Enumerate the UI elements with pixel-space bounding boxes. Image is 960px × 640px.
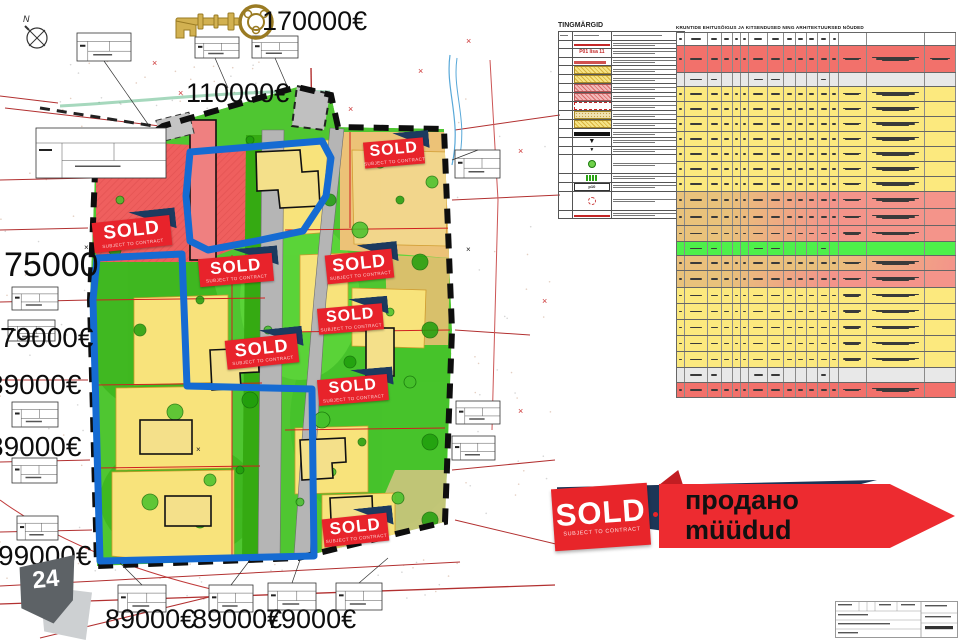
- table-cell: [784, 226, 795, 241]
- table-cell: [818, 368, 831, 382]
- banner-dot: [653, 512, 658, 517]
- table-cell: [784, 383, 795, 397]
- legend-cell: [572, 155, 611, 174]
- table-cell: [685, 33, 707, 45]
- table-cell: [818, 209, 831, 225]
- table-cell: [925, 320, 956, 335]
- legend-cell: [559, 40, 573, 49]
- building-rights-table: KRUNTIDE EHITUSÕIGUS JA KITSENDUSED NING…: [676, 25, 956, 398]
- table-cell: [818, 102, 831, 116]
- table-cell: [768, 242, 785, 255]
- table-cell: [708, 288, 722, 303]
- table-cell: [925, 352, 956, 367]
- table-cell: [807, 368, 818, 382]
- table-cell: [867, 147, 926, 161]
- legend-cell: [572, 102, 611, 111]
- table-cell: [867, 33, 926, 45]
- table-cell: [839, 352, 867, 367]
- table-cell: [685, 352, 707, 367]
- table-cell: [818, 256, 831, 270]
- table-cell: [830, 242, 838, 255]
- table-cell: [677, 177, 685, 191]
- table-cell: [839, 209, 867, 225]
- table-cell: [830, 352, 838, 367]
- legend-cell: [572, 111, 611, 120]
- table-cell: [741, 102, 749, 116]
- legend-row: [559, 84, 685, 93]
- table-cell: [807, 352, 818, 367]
- table-cell: [807, 87, 818, 101]
- table-cell: [925, 209, 956, 225]
- legend-symbol-phatch: [574, 84, 612, 92]
- table-cell: [768, 209, 785, 225]
- table-cell: [784, 256, 795, 270]
- table-cell: [708, 304, 722, 319]
- table-title: KRUNTIDE EHITUSÕIGUS JA KITSENDUSED NING…: [676, 25, 956, 30]
- sold-stamp: SOLDSUBJECT TO CONTRACT: [363, 137, 425, 168]
- table-cell: [677, 162, 685, 176]
- table-cell: [796, 73, 807, 86]
- table-cell: [722, 162, 733, 176]
- table-cell: [733, 242, 741, 255]
- table-cell: [925, 304, 956, 319]
- table-cell: [925, 87, 956, 101]
- table-cell: [749, 383, 767, 397]
- table-cell: [722, 288, 733, 303]
- table-row: [676, 208, 956, 225]
- table-cell: [741, 256, 749, 270]
- table-cell: [677, 368, 685, 382]
- table-cell: [677, 336, 685, 351]
- legend-symbol-greenbars: [574, 175, 610, 181]
- table-cell: [685, 73, 707, 86]
- table-cell: [733, 162, 741, 176]
- legend-symbol-tri: ▼: [574, 138, 610, 145]
- table-cell: [839, 242, 867, 255]
- table-cell: [867, 288, 926, 303]
- table-cell: [722, 102, 733, 116]
- legend-cell: [611, 182, 684, 191]
- table-cell: [708, 33, 722, 45]
- table-cell: [796, 383, 807, 397]
- table-cell: [741, 162, 749, 176]
- table-cell: [839, 73, 867, 86]
- table-cell: [708, 256, 722, 270]
- table-cell: [741, 336, 749, 351]
- table-cell: [796, 336, 807, 351]
- legend-row: [559, 93, 685, 102]
- table-cell: [818, 46, 831, 72]
- table-cell: [768, 288, 785, 303]
- legend-row: [559, 102, 685, 111]
- table-cell: [807, 226, 818, 241]
- sold-stamp: SOLDSUBJECT TO CONTRACT: [92, 215, 173, 253]
- table-cell: [768, 177, 785, 191]
- table-cell: [807, 132, 818, 146]
- table-cell: [830, 383, 838, 397]
- table-cell: [784, 147, 795, 161]
- table-cell: [925, 177, 956, 191]
- table-cell: [818, 352, 831, 367]
- table-cell: [741, 226, 749, 241]
- table-cell: [830, 271, 838, 287]
- table-row: [676, 367, 956, 382]
- table-cell: [768, 102, 785, 116]
- table-cell: [677, 304, 685, 319]
- legend-cell: [572, 174, 611, 183]
- table-cell: [867, 383, 926, 397]
- table-cell: [867, 256, 926, 270]
- legend-cell: [559, 49, 573, 58]
- legend-cell: ▼: [572, 146, 611, 155]
- legend-row: [559, 155, 685, 174]
- table-cell: [839, 132, 867, 146]
- table-row: [676, 303, 956, 319]
- table-cell: [749, 226, 767, 241]
- table-cell: [708, 352, 722, 367]
- table-cell: [685, 192, 707, 208]
- table-cell: [925, 73, 956, 86]
- table-cell: [830, 368, 838, 382]
- table-cell: [839, 256, 867, 270]
- stamp-body: SOLDSUBJECT TO CONTRACT: [92, 215, 173, 253]
- legend-cell: [559, 174, 573, 183]
- table-cell: [867, 46, 926, 72]
- table-cell: [807, 177, 818, 191]
- table-row: [676, 101, 956, 116]
- table-cell: [830, 117, 838, 131]
- table-cell: [741, 33, 749, 45]
- legend: TINGMÄRGID P01 lisa 11▼▼p10: [558, 22, 685, 219]
- table-cell: [708, 73, 722, 86]
- table-cell: [722, 226, 733, 241]
- table-cell: [830, 256, 838, 270]
- table-cell: [807, 147, 818, 161]
- table-cell: [741, 147, 749, 161]
- table-cell: [722, 132, 733, 146]
- table-cell: [796, 132, 807, 146]
- legend-symbol-redbar: [574, 61, 606, 64]
- table-cell: [733, 192, 741, 208]
- table-cell: [796, 87, 807, 101]
- table-cell: [784, 288, 795, 303]
- legend-symbol-reddash: [574, 102, 612, 110]
- table-cell: [867, 336, 926, 351]
- table-cell: [685, 336, 707, 351]
- table-cell: [768, 33, 785, 45]
- title-block-logo: [925, 626, 953, 629]
- table-cell: [784, 162, 795, 176]
- land-plot-flyer: ××× ××× ×× ××× N 170000€: [0, 0, 960, 640]
- table-cell: [867, 320, 926, 335]
- badge-number: 24: [31, 565, 60, 596]
- legend-symbol-blackbar: [574, 132, 610, 136]
- table-row: [676, 319, 956, 335]
- table-cell: [677, 147, 685, 161]
- table-cell: [733, 73, 741, 86]
- table-row: [676, 335, 956, 351]
- table-cell: [733, 368, 741, 382]
- table-cell: [925, 242, 956, 255]
- table-cell: [685, 242, 707, 255]
- table-cell: [722, 352, 733, 367]
- table-cell: [677, 117, 685, 131]
- table-cell: [925, 102, 956, 116]
- table-cell: [839, 46, 867, 72]
- table-cell: [741, 192, 749, 208]
- table-row: [676, 287, 956, 303]
- table-cell: [722, 209, 733, 225]
- table-cell: [839, 102, 867, 116]
- table-cell: [925, 271, 956, 287]
- table-cell: [867, 271, 926, 287]
- table-cell: [925, 132, 956, 146]
- table-cell: [796, 304, 807, 319]
- table-row: [676, 86, 956, 101]
- table-cell: [749, 320, 767, 335]
- legend-title: TINGMÄRGID: [558, 22, 685, 29]
- table-cell: [784, 352, 795, 367]
- table-cell: [830, 320, 838, 335]
- table-row: [676, 32, 956, 45]
- legend-cell: [559, 66, 573, 75]
- table-cell: [807, 304, 818, 319]
- table-cell: [796, 209, 807, 225]
- legend-cell: [611, 66, 684, 75]
- legend-row: [559, 191, 685, 210]
- table-cell: [807, 102, 818, 116]
- legend-cell: [572, 57, 611, 66]
- table-cell: [796, 352, 807, 367]
- legend-symbol-yhatch: [574, 66, 612, 74]
- table-cell: [839, 147, 867, 161]
- table-cell: [722, 256, 733, 270]
- table-cell: [733, 87, 741, 101]
- legend-row: P01 lisa 11: [559, 49, 685, 58]
- table-cell: [749, 192, 767, 208]
- legend-row: [559, 111, 685, 120]
- table-cell: [722, 73, 733, 86]
- table-cell: [796, 288, 807, 303]
- legend-cell: [559, 182, 573, 191]
- table-cell: [677, 288, 685, 303]
- table-cell: [784, 33, 795, 45]
- table-cell: [768, 132, 785, 146]
- table-cell: [733, 226, 741, 241]
- table-cell: [733, 132, 741, 146]
- table-cell: [741, 304, 749, 319]
- table-cell: [818, 242, 831, 255]
- table-cell: [722, 147, 733, 161]
- table-cell: [722, 177, 733, 191]
- table-row: [676, 161, 956, 176]
- table-cell: [685, 226, 707, 241]
- legend-symbol-yhatch: [574, 75, 612, 83]
- legend-cell: [611, 84, 684, 93]
- table-cell: [925, 336, 956, 351]
- table-cell: [749, 177, 767, 191]
- table-cell: [925, 117, 956, 131]
- table-cell: [685, 117, 707, 131]
- legend-row: ▼: [559, 137, 685, 146]
- stamp-body: SOLDSUBJECT TO CONTRACT: [225, 333, 300, 369]
- table-cell: [733, 288, 741, 303]
- table-cell: [925, 288, 956, 303]
- legend-cell: [611, 210, 684, 219]
- legend-cell: [611, 155, 684, 174]
- table-cell: [749, 368, 767, 382]
- table-cell: [708, 383, 722, 397]
- table-cell: [830, 33, 838, 45]
- table-cell: [708, 209, 722, 225]
- stamp-body: SOLDSUBJECT TO CONTRACT: [198, 253, 274, 287]
- legend-cell: [611, 111, 684, 120]
- legend-cell: [572, 129, 611, 138]
- table-cell: [784, 73, 795, 86]
- legend-cell: [559, 111, 573, 120]
- table-cell: [685, 368, 707, 382]
- table-cell: [722, 242, 733, 255]
- table-cell: [768, 226, 785, 241]
- table-cell: [867, 162, 926, 176]
- table-cell: [749, 87, 767, 101]
- table-cell: [839, 288, 867, 303]
- legend-cell: [611, 137, 684, 146]
- table-cell: [796, 117, 807, 131]
- table-cell: [733, 304, 741, 319]
- table-cell: [708, 271, 722, 287]
- table-cell: [784, 304, 795, 319]
- table-cell: [733, 33, 741, 45]
- legend-cell: [559, 84, 573, 93]
- stamp-body: SOLDSUBJECT TO CONTRACT: [363, 137, 425, 168]
- table-row: [676, 255, 956, 270]
- table-cell: [677, 87, 685, 101]
- table-cell: [768, 336, 785, 351]
- table-cell: [925, 256, 956, 270]
- table-cell: [839, 304, 867, 319]
- table-cell: [830, 87, 838, 101]
- legend-cell: [611, 49, 684, 58]
- table-row: [676, 241, 956, 255]
- table-cell: [677, 271, 685, 287]
- table-cell: [818, 304, 831, 319]
- table-cell: [807, 162, 818, 176]
- table-cell: [796, 271, 807, 287]
- legend-cell: [559, 75, 573, 84]
- table-cell: [830, 304, 838, 319]
- table-cell: [677, 226, 685, 241]
- table-cell: [722, 46, 733, 72]
- stamp-body: SOLDSUBJECT TO CONTRACT: [325, 249, 395, 285]
- table-cell: [733, 102, 741, 116]
- legend-table: P01 lisa 11▼▼p10: [558, 31, 685, 219]
- table-cell: [741, 209, 749, 225]
- table-cell: [677, 383, 685, 397]
- table-cell: [733, 271, 741, 287]
- legend-symbol-yhatch: [574, 120, 612, 128]
- table-cell: [722, 368, 733, 382]
- sold-stamps-layer: SOLDSUBJECT TO CONTRACTSOLDSUBJECT TO CO…: [0, 0, 560, 640]
- table-cell: [796, 226, 807, 241]
- table-cell: [818, 383, 831, 397]
- table-cell: [784, 117, 795, 131]
- legend-cell: [572, 40, 611, 49]
- legend-cell: [611, 120, 684, 129]
- legend-cell: [572, 191, 611, 210]
- table-cell: [796, 46, 807, 72]
- legend-symbol-redline: [574, 215, 610, 217]
- table-cell: [818, 33, 831, 45]
- table-cell: [685, 209, 707, 225]
- table-cell: [818, 226, 831, 241]
- legend-cell: [611, 191, 684, 210]
- table-cell: [784, 368, 795, 382]
- table-cell: [768, 192, 785, 208]
- table-cell: [685, 132, 707, 146]
- table-cell: [749, 352, 767, 367]
- legend-cell: [572, 120, 611, 129]
- table-row: [676, 116, 956, 131]
- table-cell: [708, 117, 722, 131]
- legend-cell: [572, 93, 611, 102]
- table-cell: [784, 336, 795, 351]
- legend-row: [559, 174, 685, 183]
- table-cell: [867, 117, 926, 131]
- legend-row: [559, 120, 685, 129]
- table-cell: [749, 304, 767, 319]
- table-cell: [741, 46, 749, 72]
- table-cell: [830, 288, 838, 303]
- table-row: [676, 191, 956, 208]
- table-cell: [768, 73, 785, 86]
- table-cell: [749, 46, 767, 72]
- table-cell: [733, 117, 741, 131]
- table-cell: [677, 33, 685, 45]
- banner-text-russian: продано: [685, 486, 955, 516]
- table-cell: [807, 320, 818, 335]
- legend-cell: [559, 120, 573, 129]
- table-cell: [807, 288, 818, 303]
- table-cell: [749, 132, 767, 146]
- table-cell: [749, 271, 767, 287]
- table-cell: [708, 147, 722, 161]
- table-cell: [830, 177, 838, 191]
- legend-row: [559, 75, 685, 84]
- table-cell: [768, 162, 785, 176]
- table-cell: [818, 162, 831, 176]
- legend-row: [559, 40, 685, 49]
- table-cell: [768, 271, 785, 287]
- table-cell: [708, 242, 722, 255]
- table-cell: [784, 177, 795, 191]
- table-cell: [839, 177, 867, 191]
- table-cell: [677, 209, 685, 225]
- stamp-body: SOLDSUBJECT TO CONTRACT: [317, 303, 384, 335]
- table-cell: [768, 147, 785, 161]
- table-cell: [749, 256, 767, 270]
- table-cell: [768, 46, 785, 72]
- table-cell: [807, 209, 818, 225]
- legend-cell: [572, 210, 611, 219]
- table-cell: [741, 177, 749, 191]
- table-cell: [733, 383, 741, 397]
- table-cell: [685, 288, 707, 303]
- table-cell: [685, 320, 707, 335]
- table-row: [676, 176, 956, 191]
- stamp-body: SOLDSUBJECT TO CONTRACT: [317, 374, 389, 406]
- table-cell: [830, 46, 838, 72]
